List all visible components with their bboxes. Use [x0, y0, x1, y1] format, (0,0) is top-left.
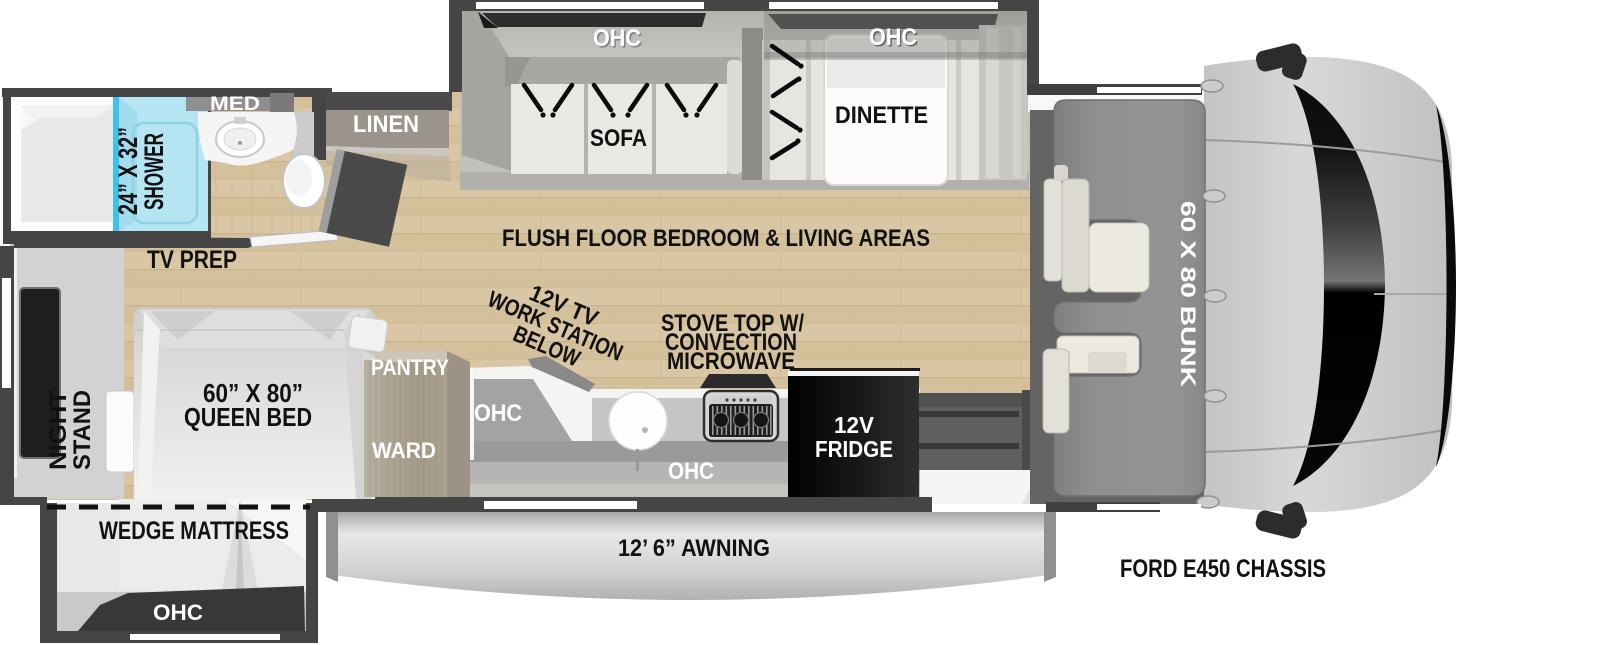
svg-text:12V: 12V	[834, 412, 875, 438]
svg-text:WARD: WARD	[372, 438, 436, 463]
svg-text:60 X 80 BUNK: 60 X 80 BUNK	[1176, 201, 1199, 387]
svg-text:OHC: OHC	[474, 400, 522, 427]
svg-text:FLUSH FLOOR BEDROOM & LIVING A: FLUSH FLOOR BEDROOM & LIVING AREAS	[502, 225, 930, 252]
svg-text:OHC: OHC	[593, 25, 641, 52]
svg-text:NIGHT: NIGHT	[45, 390, 72, 470]
svg-text:WEDGE MATTRESS: WEDGE MATTRESS	[99, 517, 289, 545]
svg-text:MICROWAVE: MICROWAVE	[667, 348, 795, 375]
svg-text:OHC: OHC	[668, 458, 714, 485]
svg-text:STAND: STAND	[69, 390, 96, 470]
svg-text:QUEEN BED: QUEEN BED	[184, 402, 312, 432]
svg-text:OHC: OHC	[869, 24, 917, 51]
svg-text:FORD E450 CHASSIS: FORD E450 CHASSIS	[1120, 555, 1326, 583]
svg-text:DINETTE: DINETTE	[835, 102, 928, 129]
svg-text:FRIDGE: FRIDGE	[815, 436, 893, 462]
svg-text:SHOWER: SHOWER	[139, 133, 169, 210]
svg-text:PANTRY: PANTRY	[371, 355, 449, 380]
svg-text:TV PREP: TV PREP	[147, 246, 237, 274]
svg-text:12’ 6” AWNING: 12’ 6” AWNING	[618, 535, 770, 562]
svg-text:OHC: OHC	[153, 600, 203, 625]
svg-text:SOFA: SOFA	[590, 125, 647, 152]
svg-text:LINEN: LINEN	[353, 111, 419, 138]
svg-text:MED: MED	[210, 94, 260, 115]
